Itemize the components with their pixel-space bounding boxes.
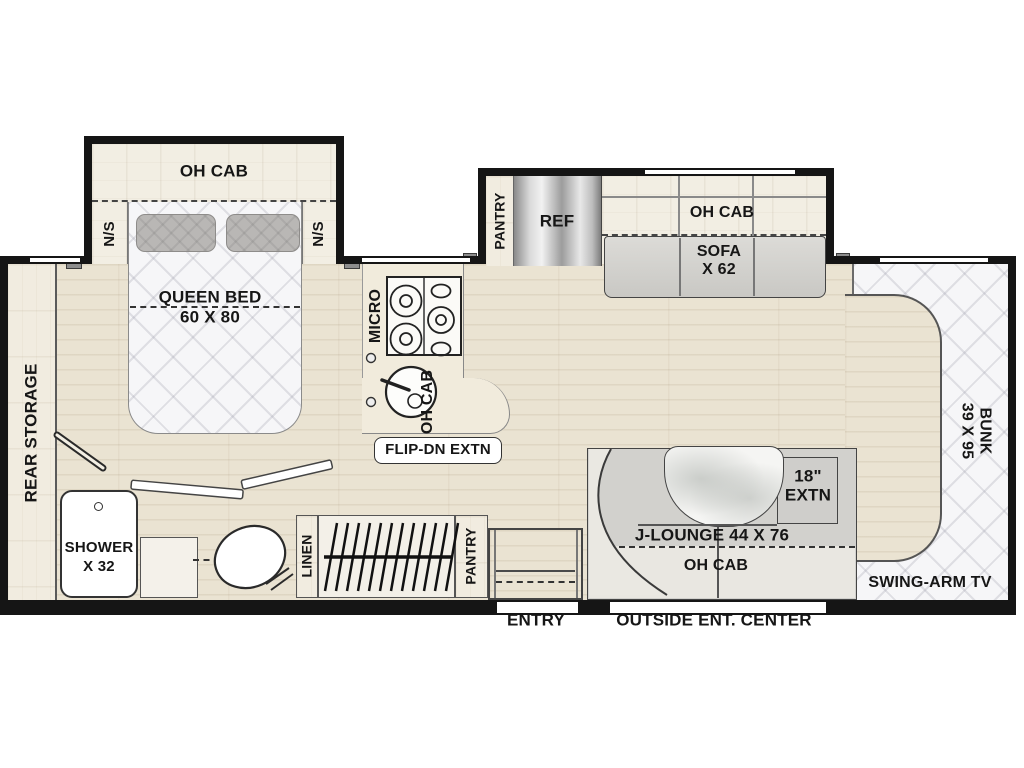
- shower-label: SHOWER: [65, 540, 134, 557]
- wardrobe-hangers-icon: [324, 523, 458, 591]
- sofa-oh-cab-label: OH CAB: [690, 204, 754, 222]
- outside-ent-center-label: OUTSIDE ENT. CENTER: [616, 612, 812, 631]
- lounge-oh-cab-label: OH CAB: [684, 557, 748, 575]
- bunk-label-line2: 39 X 95: [958, 403, 976, 460]
- flip-dn-extn-label: FLIP-DN EXTN: [385, 442, 491, 459]
- ref-label: REF: [540, 213, 575, 232]
- rear-storage-label: REAR STORAGE: [23, 363, 42, 502]
- ns-right-label: N/S: [311, 221, 328, 247]
- queen-bed-label: QUEEN BED: [159, 289, 262, 308]
- swing-arm-tv-label: SWING-ARM TV: [868, 574, 991, 592]
- extn-size-label: 18": [794, 468, 822, 487]
- shower-size-label: X 32: [83, 559, 115, 576]
- angled-partition: [57, 435, 103, 468]
- sofa-size-label: X 62: [702, 261, 736, 279]
- kitchen-oh-cab-label: OH CAB: [419, 370, 437, 434]
- bunk-label-line1: BUNK: [976, 403, 994, 460]
- pantry-top-label: PANTRY: [492, 192, 507, 249]
- linen-label: LINEN: [299, 535, 314, 578]
- rv-floor-plan: OH CAB N/S N/S QUEEN BED 60 X 80 REAR ST…: [0, 0, 1024, 768]
- stove-burners-icon: [391, 285, 455, 356]
- detail-overlay: [0, 0, 1024, 768]
- entry-label: ENTRY: [507, 612, 565, 631]
- sofa-label: SOFA: [697, 243, 741, 261]
- lounge-curve: [589, 449, 667, 595]
- bunk-label: BUNK 39 X 95: [958, 403, 993, 460]
- queen-bed-size-label: 60 X 80: [180, 309, 240, 328]
- extn-label: EXTN: [785, 487, 831, 506]
- j-lounge-label: J-LOUNGE 44 X 76: [635, 527, 789, 546]
- ns-left-label: N/S: [102, 221, 119, 247]
- bedroom-oh-cab-label: OH CAB: [180, 163, 248, 182]
- bathroom-door-icon: [131, 460, 333, 499]
- pantry-bottom-label: PANTRY: [463, 527, 478, 584]
- toilet-icon: [205, 515, 295, 599]
- micro-label: MICRO: [367, 289, 385, 343]
